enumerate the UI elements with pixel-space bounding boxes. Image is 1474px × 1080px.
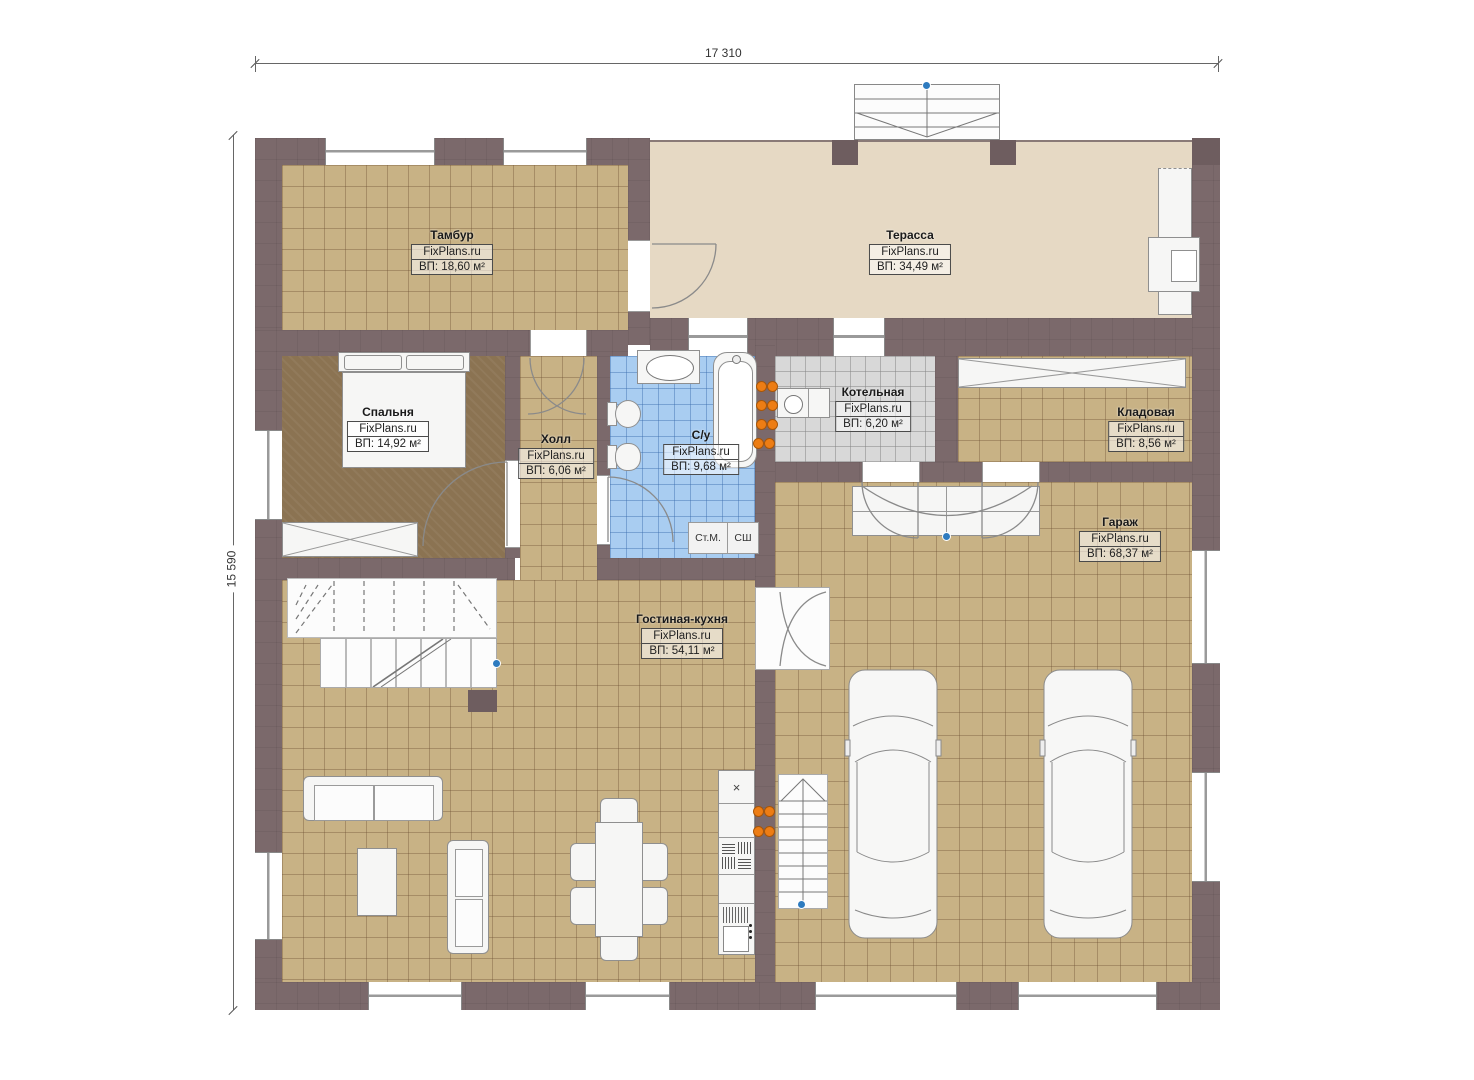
radiator-dot (753, 438, 764, 449)
radiator-dot (756, 381, 767, 392)
room-area: ВП: 6,06 м² (519, 464, 593, 478)
entry-steps (854, 84, 1000, 140)
bed-pillow (344, 355, 402, 370)
window (255, 430, 282, 520)
room-label-bathroom: С/у FixPlans.ru ВП: 9,68 м² (663, 428, 739, 475)
wardrobe (282, 522, 418, 557)
dimension-extension (255, 56, 256, 72)
terrace-corner-column (1192, 138, 1220, 165)
dining-table (595, 822, 643, 937)
radiator-dot (764, 826, 775, 837)
room-brand: FixPlans.ru (348, 422, 428, 437)
room-brand: FixPlans.ru (836, 402, 910, 417)
storage-shelf (958, 358, 1186, 388)
sofa-small (447, 840, 489, 954)
window (585, 982, 670, 1010)
stove-burner (722, 842, 735, 854)
kitchen-counter: × (718, 770, 755, 955)
window (368, 982, 462, 1010)
garage-workbench (852, 486, 1040, 536)
fridge-inner (723, 926, 749, 952)
room-title: Гараж (1102, 515, 1138, 529)
dimension-extension (1218, 56, 1219, 72)
bathtub-faucet (732, 355, 741, 364)
room-area: ВП: 14,92 м² (348, 437, 428, 451)
main-stairs-upper (287, 578, 497, 638)
room-area: ВП: 8,56 м² (1109, 437, 1183, 451)
room-label-living: Гостиная-кухня FixPlans.ru ВП: 54,11 м² (636, 612, 728, 659)
fridge-knob (749, 924, 752, 927)
floor-plan-canvas: 17 310 15 590 (0, 0, 1474, 1080)
storage-shelf-cross (959, 359, 1185, 387)
sofa-cushion (455, 899, 483, 947)
room-area: ВП: 68,37 м² (1080, 547, 1160, 561)
dining-chair (600, 935, 638, 961)
sofa-cushion (455, 849, 483, 897)
workbench-divider (946, 487, 947, 535)
radiator-dot (767, 419, 778, 430)
window (255, 852, 282, 940)
wall-boiler-storage (935, 356, 958, 462)
room-label-storage: Кладовая FixPlans.ru ВП: 8,56 м² (1108, 405, 1184, 452)
room-title: Терасса (886, 228, 934, 242)
garage-door (815, 982, 957, 1010)
window (325, 138, 435, 165)
radiator-dot (764, 806, 775, 817)
door-opening-garage-boiler (862, 462, 920, 482)
terrace-column (990, 140, 1016, 165)
kitchen-sink: × (719, 771, 754, 804)
grill-inner (1171, 250, 1197, 282)
garage-door (1018, 982, 1157, 1010)
room-area: ВП: 54,11 м² (642, 644, 721, 658)
stove (719, 837, 754, 875)
door-opening-garage-storage (982, 462, 1040, 482)
room-title: С/у (692, 428, 711, 442)
room-title: Холл (541, 432, 571, 446)
radiator-dot (756, 419, 767, 430)
dining-chair (641, 887, 668, 925)
fridge (719, 903, 754, 955)
marker-dot (797, 900, 806, 909)
sink-bowl (646, 355, 694, 381)
boiler-washer (777, 388, 830, 418)
stove-burner (722, 857, 735, 869)
garage-stairs-treads (779, 775, 827, 908)
sofa-cushion (374, 785, 434, 821)
terrace-column (832, 140, 858, 165)
sink-counter (637, 350, 700, 384)
room-title: Гостиная-кухня (636, 612, 728, 626)
dining-chair (641, 843, 668, 881)
stove-burner (738, 857, 751, 869)
washer-divider (808, 389, 809, 417)
main-stairs-lower-treads (321, 639, 496, 687)
room-area: ВП: 34,49 м² (870, 260, 950, 274)
room-title: Спальня (362, 405, 414, 419)
room-title: Котельная (842, 385, 905, 399)
stove-burner (738, 842, 751, 854)
radiator-dot (767, 400, 778, 411)
appliance-tags: Ст.М. СШ (688, 522, 759, 554)
washer-drum (784, 395, 803, 414)
marker-dot (942, 532, 951, 541)
garage-landing (755, 587, 830, 670)
toilet-bowl (615, 400, 641, 428)
bed-pillow (406, 355, 464, 370)
room-brand: FixPlans.ru (870, 245, 950, 260)
wall-top (255, 138, 650, 165)
wardrobe-cross (283, 523, 417, 556)
window (1192, 550, 1220, 664)
room-label-garage: Гараж FixPlans.ru ВП: 68,37 м² (1079, 515, 1161, 562)
room-area: ВП: 9,68 м² (664, 460, 738, 474)
room-brand: FixPlans.ru (664, 445, 738, 460)
window (1192, 772, 1220, 882)
dining-chair (570, 887, 597, 925)
coffee-table (357, 848, 397, 916)
room-label-terrace: Терасса FixPlans.ru ВП: 34,49 м² (869, 228, 951, 275)
room-label-boiler: Котельная FixPlans.ru ВП: 6,20 м² (835, 385, 911, 432)
terrace-edge-line (650, 140, 1192, 142)
sofa (303, 776, 443, 821)
dining-chair (570, 843, 597, 881)
room-label-tambour: Тамбур FixPlans.ru ВП: 18,60 м² (411, 228, 493, 275)
door-opening-tambour-terrace (628, 240, 650, 312)
stair-column (468, 690, 497, 712)
fridge-knob (749, 936, 752, 939)
wall-bedroom-living (255, 558, 515, 580)
room-brand: FixPlans.ru (1109, 422, 1183, 437)
room-area: ВП: 18,60 м² (412, 260, 492, 274)
room-brand: FixPlans.ru (642, 629, 721, 644)
radiator-dot (767, 381, 778, 392)
room-label-hall: Холл FixPlans.ru ВП: 6,06 м² (518, 432, 594, 479)
garage-stairs (778, 774, 828, 909)
fridge-knob (749, 930, 752, 933)
window (833, 318, 885, 356)
room-brand: FixPlans.ru (1080, 532, 1160, 547)
radiator-dot (753, 826, 764, 837)
room-area: ВП: 6,20 м² (836, 417, 910, 431)
door-opening-tambour-hall (530, 330, 587, 356)
room-label-bedroom: Спальня FixPlans.ru ВП: 14,92 м² (347, 405, 429, 452)
main-stairs-lower (320, 638, 497, 688)
dryer-tag: СШ (728, 522, 759, 554)
radiator-dot (753, 806, 764, 817)
room-brand: FixPlans.ru (519, 449, 593, 464)
room-title: Кладовая (1117, 405, 1174, 419)
wall-bath-living (597, 558, 755, 580)
bidet-bowl (615, 443, 641, 471)
sofa-cushion (314, 785, 374, 821)
radiator-dot (756, 400, 767, 411)
main-stairs-upper-treads (288, 579, 496, 637)
dimension-width-label: 17 310 (700, 46, 747, 60)
terrace-grill (1148, 237, 1200, 292)
marker-dot (492, 659, 501, 668)
dining-chair (600, 798, 638, 824)
marker-dot (922, 81, 931, 90)
radiator-dot (764, 438, 775, 449)
washing-machine-tag: Ст.М. (688, 522, 728, 554)
window (503, 138, 587, 165)
dimension-line-top (255, 63, 1218, 64)
room-brand: FixPlans.ru (412, 245, 492, 260)
room-title: Тамбур (430, 228, 474, 242)
fridge-coil (723, 907, 749, 923)
entry-steps-treads (855, 85, 999, 139)
door-opening-bathroom (597, 475, 610, 545)
dimension-height-label: 15 590 (224, 546, 238, 593)
